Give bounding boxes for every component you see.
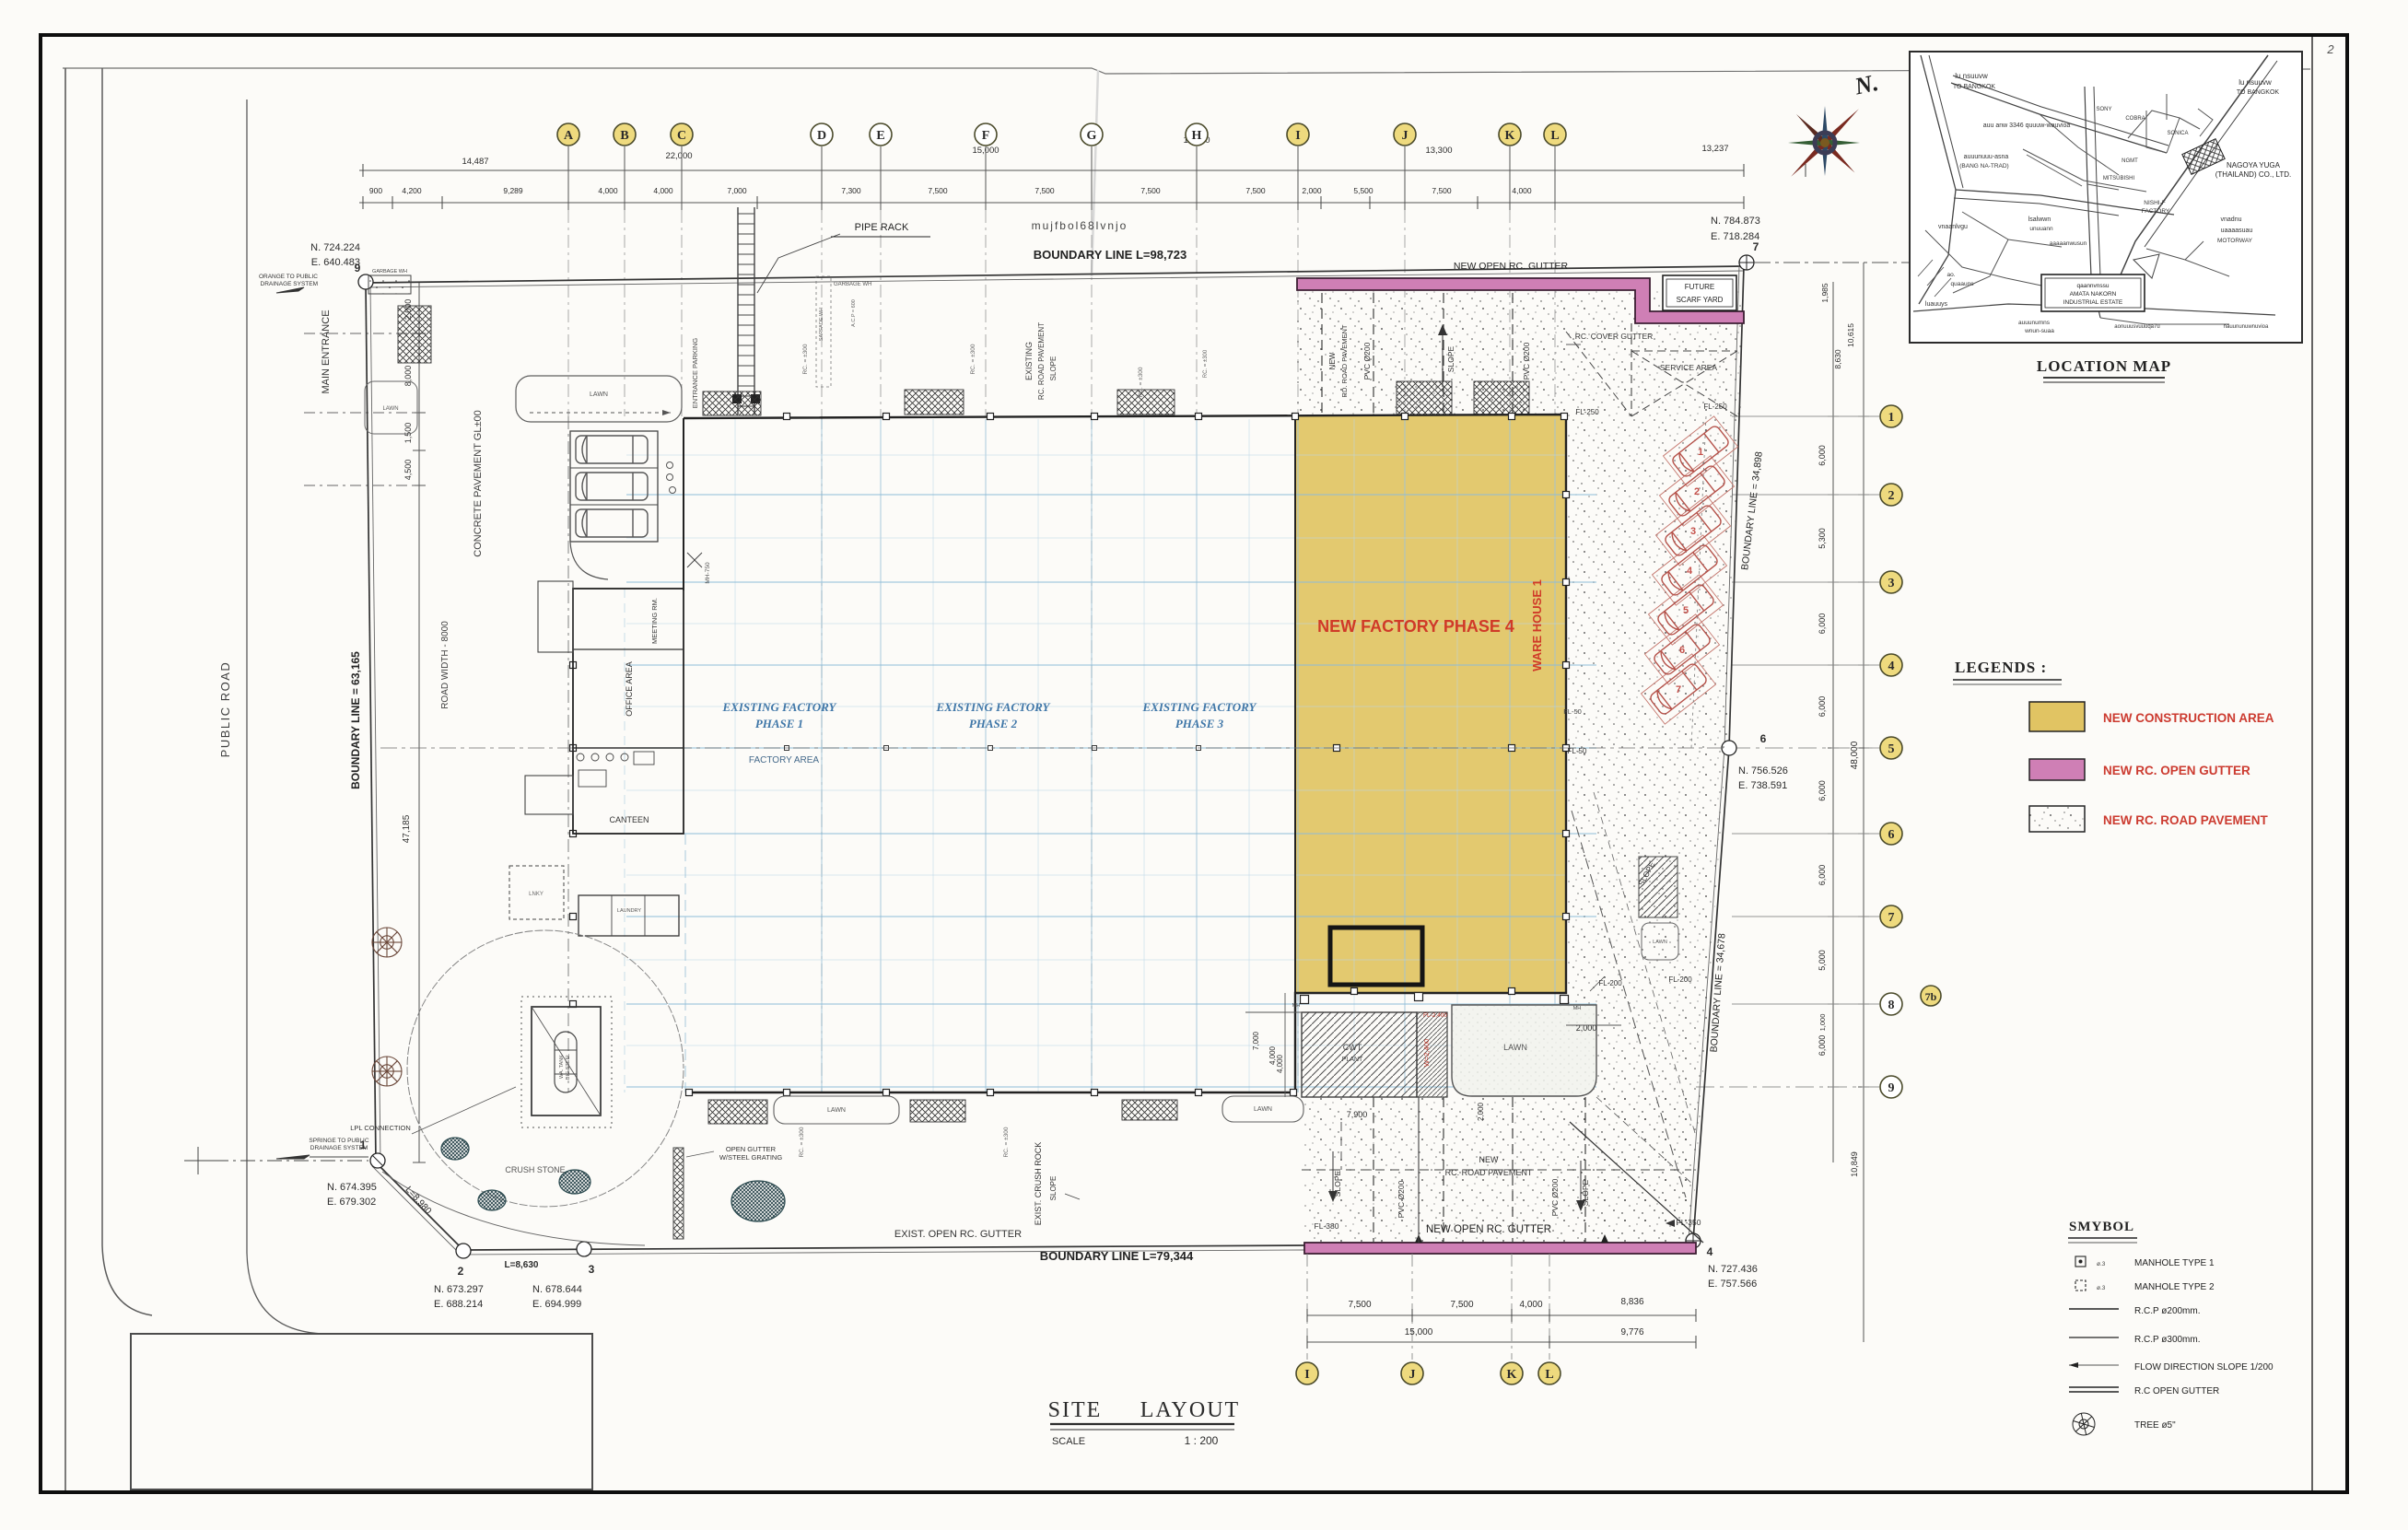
svg-text:SPRINGE TO PUBLIC: SPRINGE TO PUBLIC [309, 1138, 368, 1144]
svg-text:FL-250: FL-250 [1703, 403, 1727, 411]
svg-text:BOUNDARY LINE = 63,165: BOUNDARY LINE = 63,165 [349, 651, 362, 789]
svg-text:SONY: SONY [2096, 107, 2111, 112]
svg-text:mujfbol68lvnjo: mujfbol68lvnjo [1032, 219, 1128, 232]
svg-text:13,300: 13,300 [1425, 146, 1452, 156]
svg-text:R.C.P ø300mm.: R.C.P ø300mm. [2134, 1335, 2201, 1345]
svg-text:auu anw 3346 quuuw-wauvioa: auu anw 3346 quuuw-wauvioa [1983, 123, 2071, 129]
svg-text:PVC Ø200: PVC Ø200 [1522, 342, 1531, 380]
svg-text:INDUSTRIAL ESTATE: INDUSTRIAL ESTATE [2063, 299, 2123, 306]
svg-text:7b: 7b [1925, 990, 1937, 1003]
svg-text:aaaaanwusun: aaaaanwusun [2050, 240, 2087, 247]
svg-text:6: 6 [1760, 732, 1767, 745]
svg-text:WARE HOUSE 1: WARE HOUSE 1 [1530, 579, 1544, 672]
svg-text:MITSUBISHI: MITSUBISHI [2103, 176, 2135, 181]
svg-text:FL-380: FL-380 [1315, 1221, 1339, 1231]
svg-text:5: 5 [1888, 742, 1895, 756]
svg-text:4: 4 [1707, 1245, 1713, 1258]
svg-text:4,200: 4,200 [402, 186, 422, 195]
svg-text:7,500: 7,500 [1348, 1300, 1371, 1310]
svg-text:ø.3: ø.3 [2097, 1261, 2106, 1267]
svg-text:2: 2 [1888, 489, 1895, 503]
svg-text:DRAINAGE SYSTEM: DRAINAGE SYSTEM [261, 281, 318, 287]
svg-text:FL-250: FL-250 [1575, 408, 1599, 416]
svg-text:H: H [1192, 129, 1202, 143]
svg-text:7: 7 [1753, 240, 1759, 253]
svg-text:RD. ROAD PAVEMENT: RD. ROAD PAVEMENT [1340, 324, 1349, 397]
svg-text:900: 900 [369, 186, 382, 195]
svg-text:4,000: 4,000 [1519, 1300, 1542, 1310]
svg-text:J: J [1409, 1368, 1416, 1382]
svg-text:7,000: 7,000 [1252, 1031, 1260, 1050]
svg-text:LAWN: LAWN [382, 406, 398, 412]
svg-text:W/STEEL GRATING: W/STEEL GRATING [719, 1153, 783, 1162]
svg-text:auuunuuu-asna: auuunuuu-asna [1964, 154, 2009, 160]
svg-text:nauununuwnuvioa: nauununuwnuvioa [2224, 324, 2269, 330]
svg-text:K: K [1507, 1368, 1517, 1382]
svg-text:RC. COVER GUTTER: RC. COVER GUTTER [1575, 332, 1654, 341]
svg-text:6,000: 6,000 [1818, 1035, 1827, 1057]
svg-text:7,500: 7,500 [928, 186, 948, 195]
svg-text:lsalwwn: lsalwwn [2028, 216, 2051, 223]
svg-text:lu nsuuvw: lu nsuuvw [1955, 72, 1988, 80]
svg-text:FL-350: FL-350 [1677, 1218, 1701, 1227]
svg-text:CONCRETE PAVEMENT GL±00: CONCRETE PAVEMENT GL±00 [473, 410, 484, 556]
svg-text:NEW: NEW [1328, 352, 1337, 369]
svg-text:MH: MH [1573, 1006, 1582, 1011]
svg-text:MH: MH [1292, 1003, 1301, 1009]
svg-text:RC. ROAD PAVEMENT: RC. ROAD PAVEMENT [1445, 1168, 1533, 1177]
svg-text:E. 688.214: E. 688.214 [434, 1299, 483, 1310]
svg-text:FL-50: FL-50 [1568, 747, 1587, 755]
svg-text:8,836: 8,836 [1620, 1297, 1643, 1307]
svg-text:MAIN ENTRANCE: MAIN ENTRANCE [321, 310, 332, 393]
svg-text:6,000: 6,000 [1818, 613, 1827, 635]
svg-text:MANHOLE TYPE 1: MANHOLE TYPE 1 [2134, 1258, 2215, 1268]
svg-text:N. 678.644: N. 678.644 [532, 1284, 582, 1295]
svg-text:2: 2 [458, 1265, 464, 1278]
svg-text:6,000: 6,000 [1818, 696, 1827, 718]
svg-text:GARBAGE WH: GARBAGE WH [834, 282, 871, 287]
svg-text:6,000: 6,000 [1818, 780, 1827, 801]
svg-text:I: I [1295, 129, 1300, 143]
svg-text:NEW FACTORY PHASE 4: NEW FACTORY PHASE 4 [1317, 617, 1514, 636]
svg-text:SONICA: SONICA [2167, 131, 2188, 136]
svg-text:PVC Ø200: PVC Ø200 [1362, 342, 1372, 380]
svg-text:E. 694.999: E. 694.999 [532, 1299, 581, 1310]
svg-text:(BANG NA-TRAD): (BANG NA-TRAD) [1959, 163, 2008, 169]
svg-text:quaauns: quaauns [1951, 281, 1975, 287]
svg-text:ROAD WIDTH - 8000: ROAD WIDTH - 8000 [440, 621, 450, 709]
svg-text:auuunumns: auuunumns [2018, 320, 2051, 326]
svg-text:2,000: 2,000 [1576, 1023, 1597, 1033]
svg-text:ø.3: ø.3 [2097, 1285, 2106, 1291]
svg-text:TREE ø5": TREE ø5" [2134, 1420, 2176, 1431]
svg-text:LNKY: LNKY [529, 892, 544, 897]
svg-text:BOUNDARY LINE L=98,723: BOUNDARY LINE L=98,723 [1034, 248, 1187, 262]
svg-text:FLOW DIRECTION SLOPE 1/200: FLOW DIRECTION SLOPE 1/200 [2134, 1362, 2274, 1372]
svg-text:ao.: ao. [1946, 272, 1955, 278]
svg-text:SARFADE WH: SARFADE WH [819, 308, 824, 341]
svg-text:CWT: CWT [1343, 1043, 1362, 1052]
svg-text:WA. TANK: WA. TANK [559, 1055, 565, 1079]
svg-text:5: 5 [1683, 605, 1689, 616]
svg-text:PVC Ø200: PVC Ø200 [1550, 1178, 1560, 1216]
svg-text:47,185: 47,185 [402, 814, 412, 843]
svg-text:AMATA NAKORN: AMATA NAKORN [2070, 291, 2117, 298]
svg-text:NAGOYA YUGA: NAGOYA YUGA [2227, 161, 2281, 169]
svg-text:SITE: SITE [1048, 1398, 1103, 1422]
svg-text:EXISTING: EXISTING [1024, 342, 1034, 380]
svg-text:PLANT: PLANT [1342, 1057, 1363, 1063]
svg-text:NISHI-F: NISHI-F [2144, 200, 2166, 206]
svg-text:LEGENDS :: LEGENDS : [1955, 659, 2047, 676]
svg-text:DRAINAGE SYSTEM: DRAINAGE SYSTEM [310, 1145, 368, 1151]
svg-text:BOUNDARY LINE L=79,344: BOUNDARY LINE L=79,344 [1040, 1249, 1194, 1263]
svg-text:13,237: 13,237 [1701, 144, 1728, 154]
svg-text:FACTORY: FACTORY [2142, 208, 2170, 215]
svg-text:L: L [1550, 129, 1559, 143]
svg-text:uaaaasuau: uaaaasuau [2221, 228, 2253, 234]
svg-text:10,849: 10,849 [1850, 1151, 1859, 1177]
svg-text:1,000: 1,000 [1818, 1014, 1827, 1032]
svg-text:TO BANGKOK: TO BANGKOK [2237, 89, 2279, 96]
svg-text:RC. = ±300: RC. = ±300 [1203, 349, 1209, 378]
svg-text:G: G [1087, 129, 1097, 143]
svg-text:D: D [817, 129, 826, 143]
svg-text:7,500: 7,500 [1450, 1300, 1473, 1310]
svg-text:A: A [564, 129, 574, 143]
svg-text:E. 738.591: E. 738.591 [1738, 780, 1787, 791]
svg-text:luauuys: luauuys [1925, 301, 1948, 308]
svg-text:LAWN: LAWN [827, 1107, 846, 1114]
svg-text:LAWN: LAWN [590, 391, 608, 398]
svg-text:lu nsuuvw: lu nsuuvw [2239, 78, 2272, 87]
svg-text:1: 1 [1698, 447, 1703, 458]
svg-text:PIPE RACK: PIPE RACK [855, 222, 909, 233]
svg-text:1,985: 1,985 [1820, 283, 1829, 303]
svg-text:SERVICE AREA: SERVICE AREA [1660, 363, 1718, 372]
svg-text:K: K [1505, 129, 1515, 143]
svg-text:vnadnu: vnadnu [2221, 216, 2242, 223]
svg-text:FUTURE: FUTURE [1685, 283, 1714, 291]
svg-text:PHASE 1: PHASE 1 [755, 717, 803, 730]
svg-text:F: F [982, 129, 990, 143]
svg-text:8,630: 8,630 [1833, 349, 1842, 369]
svg-text:N. 674.395: N. 674.395 [327, 1182, 377, 1193]
svg-text:EXISTING FACTORY: EXISTING FACTORY [1142, 700, 1257, 714]
svg-text:ORANGE TO PUBLIC: ORANGE TO PUBLIC [259, 274, 318, 280]
svg-text:I: I [1304, 1368, 1309, 1382]
svg-text:PVC Ø200: PVC Ø200 [1397, 1180, 1406, 1218]
svg-text:15,000: 15,000 [1405, 1327, 1433, 1337]
svg-text:W=2,400: W=2,400 [1422, 1039, 1431, 1067]
svg-text:EXIST. OPEN RC. GUTTER: EXIST. OPEN RC. GUTTER [894, 1229, 1022, 1240]
svg-text:LPL CONNECTION: LPL CONNECTION [350, 1124, 411, 1132]
svg-text:CRUSH STONE: CRUSH STONE [505, 1165, 565, 1174]
svg-text:5,500: 5,500 [1353, 186, 1373, 195]
svg-text:LAUNDRY: LAUNDRY [617, 908, 642, 914]
svg-text:PUBLIC ROAD: PUBLIC ROAD [218, 661, 232, 758]
svg-text:N. 784.873: N. 784.873 [1711, 216, 1760, 227]
svg-text:SCARF YARD: SCARF YARD [1677, 296, 1724, 304]
svg-text:B: B [620, 129, 628, 143]
svg-text:7,500: 7,500 [1140, 186, 1161, 195]
svg-text:FL-200: FL-200 [1668, 975, 1692, 984]
svg-text:6,000: 6,000 [1818, 865, 1827, 886]
svg-text:R.C OPEN GUTTER: R.C OPEN GUTTER [2134, 1386, 2219, 1396]
svg-text:FL-50: FL-50 [1563, 707, 1582, 716]
svg-text:LAWN: LAWN [1653, 940, 1667, 945]
svg-text:SLOPE: SLOPE [1049, 356, 1058, 381]
svg-text:COBRA: COBRA [2125, 116, 2145, 122]
svg-text:7,900: 7,900 [1347, 1110, 1368, 1119]
svg-text:LAYOUT: LAYOUT [1140, 1398, 1240, 1422]
svg-text:FL-2,400: FL-2,400 [1423, 1012, 1447, 1019]
svg-text:LAWN: LAWN [1503, 1043, 1527, 1052]
svg-text:EXISTING FACTORY: EXISTING FACTORY [722, 700, 837, 714]
svg-text:7,500: 7,500 [1432, 186, 1452, 195]
svg-text:4,000: 4,000 [1512, 186, 1532, 195]
svg-text:ENTRANCE PARKING: ENTRANCE PARKING [691, 338, 699, 409]
svg-text:3: 3 [589, 1263, 595, 1276]
svg-text:RC. = ±300: RC. = ±300 [970, 344, 976, 374]
svg-text:NEW OPEN RC. GUTTER: NEW OPEN RC. GUTTER [1426, 1224, 1551, 1235]
svg-text:N. 673.297: N. 673.297 [434, 1284, 484, 1295]
svg-text:2,000: 2,000 [1477, 1102, 1485, 1121]
svg-text:N. 756.526: N. 756.526 [1738, 765, 1788, 777]
svg-text:LOCATION MAP: LOCATION MAP [2037, 357, 2171, 375]
svg-text:3: 3 [1690, 526, 1696, 537]
svg-text:4: 4 [1888, 660, 1895, 673]
svg-text:NEW RC. ROAD PAVEMENT: NEW RC. ROAD PAVEMENT [2103, 813, 2269, 827]
svg-text:7,300: 7,300 [841, 186, 861, 195]
svg-text:5,000: 5,000 [1818, 950, 1827, 971]
svg-text:FL-200: FL-200 [1598, 979, 1622, 987]
svg-text:7,500: 7,500 [1035, 186, 1055, 195]
svg-text:4: 4 [1687, 566, 1693, 577]
svg-text:EXIST. CRUSH ROCK: EXIST. CRUSH ROCK [1034, 1142, 1043, 1226]
svg-text:22,000: 22,000 [665, 151, 692, 161]
svg-text:4,000: 4,000 [1276, 1054, 1284, 1073]
svg-text:MEETING RM.: MEETING RM. [650, 598, 659, 644]
svg-text:GARBAGE WH: GARBAGE WH [372, 269, 407, 274]
svg-text:unuuann: unuuann [2029, 226, 2053, 232]
svg-text:2: 2 [2326, 42, 2334, 56]
svg-text:9,289: 9,289 [503, 186, 523, 195]
svg-text:EXISTING FACTORY: EXISTING FACTORY [936, 700, 1051, 714]
svg-text:6,000: 6,000 [1818, 445, 1827, 466]
svg-text:E. 718.284: E. 718.284 [1711, 231, 1759, 242]
svg-text:E. 679.302: E. 679.302 [327, 1197, 376, 1208]
svg-text:SMYBOL: SMYBOL [2069, 1220, 2134, 1234]
svg-text:RC. = ±300: RC. = ±300 [799, 1127, 805, 1157]
svg-text:5,300: 5,300 [1818, 528, 1827, 549]
svg-text:FACTORY AREA: FACTORY AREA [749, 755, 819, 765]
svg-text:N. 727.436: N. 727.436 [1708, 1264, 1758, 1275]
svg-text:SLOPE: SLOPE [1049, 1176, 1058, 1201]
svg-text:MH-750: MH-750 [705, 562, 711, 584]
svg-text:C: C [677, 129, 686, 143]
svg-text:R.C.P ø200mm.: R.C.P ø200mm. [2134, 1306, 2201, 1316]
svg-text:7: 7 [1676, 684, 1681, 695]
svg-text:qaannvnssu: qaannvnssu [2076, 283, 2109, 289]
svg-text:9: 9 [1888, 1081, 1895, 1095]
svg-text:OPEN GUTTER: OPEN GUTTER [726, 1145, 777, 1153]
svg-text:1: 1 [1888, 411, 1895, 425]
svg-text:14,487: 14,487 [462, 157, 488, 167]
svg-text:PHASE 3: PHASE 3 [1175, 717, 1224, 730]
svg-text:MOTORWAY: MOTORWAY [2217, 238, 2253, 244]
svg-text:9,776: 9,776 [1620, 1327, 1643, 1337]
svg-text:SLOPE: SLOPE [1446, 346, 1455, 373]
svg-text:LAWN: LAWN [1254, 1106, 1272, 1113]
svg-text:CANTEEN: CANTEEN [609, 815, 649, 824]
svg-text:RC. = ±300: RC. = ±300 [1003, 1127, 1010, 1157]
svg-text:TO BANGKOK: TO BANGKOK [1953, 84, 1995, 90]
svg-text:4,500: 4,500 [403, 460, 413, 481]
svg-text:6: 6 [1888, 828, 1895, 842]
svg-text:E. 757.566: E. 757.566 [1708, 1279, 1757, 1290]
svg-text:4,000: 4,000 [653, 186, 673, 195]
svg-text:2,000: 2,000 [1302, 186, 1322, 195]
svg-text:OFFICE AREA: OFFICE AREA [625, 661, 634, 717]
svg-text:RC. = ±300: RC. = ±300 [802, 344, 809, 374]
svg-text:E: E [876, 129, 884, 143]
svg-text:wnun-suaa: wnun-suaa [2024, 328, 2054, 334]
svg-text:7: 7 [1888, 911, 1895, 925]
svg-text:J: J [1402, 129, 1409, 143]
svg-text:SCALE: SCALE [1052, 1436, 1085, 1447]
svg-text:NEW CONSTRUCTION AREA: NEW CONSTRUCTION AREA [2103, 711, 2274, 725]
svg-text:PHASE 2: PHASE 2 [969, 717, 1018, 730]
svg-text:N. 724.224: N. 724.224 [310, 242, 360, 253]
svg-text:48,000: 48,000 [1850, 741, 1860, 769]
svg-text:vnaanlvgu: vnaanlvgu [1938, 224, 1968, 230]
svg-text:NEW OPEN RC. GUTTER: NEW OPEN RC. GUTTER [1454, 261, 1569, 272]
svg-text:1 : 200: 1 : 200 [1185, 1434, 1219, 1447]
svg-text:L=8,630: L=8,630 [505, 1260, 539, 1270]
svg-text:A.C.P = 600: A.C.P = 600 [851, 299, 857, 327]
svg-text:7,000: 7,000 [727, 186, 747, 195]
svg-text:RC. = ±300: RC. = ±300 [1138, 367, 1144, 397]
svg-text:(THAILAND) CO., LTD.: (THAILAND) CO., LTD. [2215, 170, 2292, 179]
svg-text:MANHOLE TYPE 2: MANHOLE TYPE 2 [2134, 1282, 2215, 1292]
svg-text:6: 6 [1679, 645, 1685, 656]
svg-text:7,500: 7,500 [1245, 186, 1266, 195]
svg-text:4,000: 4,000 [598, 186, 618, 195]
svg-text:NEW: NEW [1479, 1155, 1500, 1164]
svg-text:NEW RC. OPEN GUTTER: NEW RC. OPEN GUTTER [2103, 764, 2250, 777]
svg-text:8,000: 8,000 [403, 366, 413, 387]
svg-text:RC. ROAD PAVEMENT: RC. ROAD PAVEMENT [1037, 322, 1046, 400]
svg-text:BIG STEEL: BIG STEEL [566, 1054, 571, 1080]
svg-text:3: 3 [1888, 577, 1895, 590]
svg-text:E. 640.483: E. 640.483 [311, 257, 360, 268]
svg-text:NGMT: NGMT [2122, 158, 2138, 164]
svg-text:2: 2 [1694, 486, 1700, 497]
svg-text:L: L [1545, 1368, 1553, 1382]
svg-text:10,615: 10,615 [1846, 323, 1855, 347]
svg-text:8: 8 [1888, 999, 1895, 1012]
svg-text:aonuuusvuuuqa7u: aonuuusvuuuqa7u [2114, 324, 2159, 330]
